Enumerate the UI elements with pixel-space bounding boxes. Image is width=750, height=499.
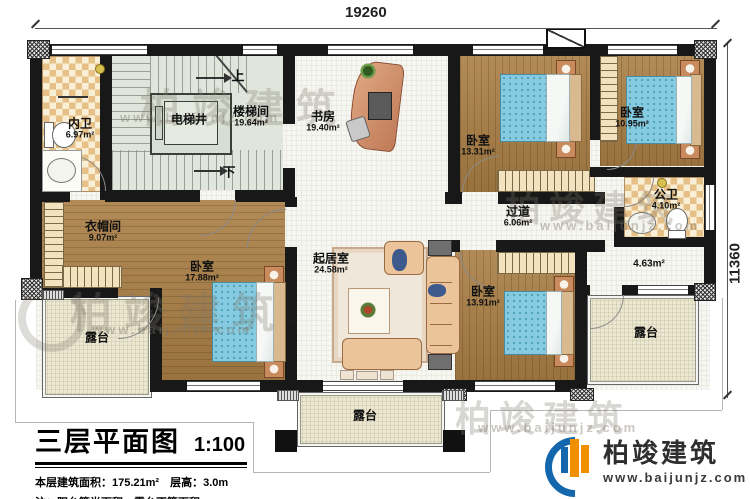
wall-gongwei-south <box>614 237 716 247</box>
bed-sheet <box>546 74 570 142</box>
person-figure <box>392 249 407 271</box>
room-label-guodao: 过道 6.06m² <box>504 205 533 228</box>
nightstand <box>264 360 284 378</box>
wall-bedroom-d-north-2 <box>496 240 605 252</box>
floor-plan-canvas: 19260 11360 柏竣建筑 www.baijunjz.com 柏竣建筑 w… <box>0 0 750 499</box>
room-area: 10.95m² <box>615 120 649 130</box>
title-row: 三层平面图 1:100 <box>35 420 295 459</box>
side-table <box>428 354 452 370</box>
bed-sheet <box>676 76 692 144</box>
table-decor <box>358 300 378 320</box>
title-underline-thin <box>35 467 247 468</box>
flue-box <box>546 28 586 49</box>
room-label-qijushi: 起居室 24.58m² <box>313 252 349 275</box>
room-area: 6.97m² <box>66 131 95 141</box>
wall-study-bedroom-a <box>448 44 460 204</box>
eave-line <box>15 300 16 423</box>
room-area: 19.64m² <box>233 119 269 129</box>
dimension-line-right <box>727 44 728 398</box>
sofa-cushions <box>430 262 452 346</box>
dimension-top-value: 19260 <box>345 4 387 21</box>
area-info-line: 本层建筑面积：175.21m² 层高：3.0m <box>35 474 295 490</box>
room-area: 13.91m² <box>466 299 500 309</box>
side-table <box>428 240 452 256</box>
corner-post-nw <box>27 40 50 59</box>
entry-mark <box>356 371 378 380</box>
room-area: 13.31m² <box>461 148 495 158</box>
bed-mattress-d <box>504 291 548 355</box>
stair-down-label: 下 <box>222 162 235 181</box>
room-area: 24.58m² <box>313 266 349 276</box>
wall-post-east <box>694 283 716 301</box>
tv-panel <box>286 272 297 326</box>
room-area: 17.88m² <box>185 274 219 284</box>
sliding-door-living-terrace <box>323 381 403 391</box>
bed-mattress-a <box>500 74 548 142</box>
room-name: 露台 <box>353 409 377 422</box>
sofa-bottom <box>342 338 422 370</box>
watermark-url: www.baijunjz.com <box>540 218 700 233</box>
plant <box>360 63 376 79</box>
room-label-yimaojian: 衣帽间 9.07m² <box>85 220 121 243</box>
plan-scale: 1:100 <box>194 434 245 457</box>
nightstand <box>556 140 576 158</box>
dimension-tick <box>723 390 732 399</box>
room-label-gongwei: 公卫 4.10m² <box>652 188 681 211</box>
brand-logo-bar-orange-2 <box>581 445 589 473</box>
room-area: 19.40m² <box>306 124 340 134</box>
wall-bedroom-a-b <box>590 44 600 140</box>
plan-title: 三层平面图 <box>35 420 180 459</box>
room-name: 露台 <box>85 331 109 344</box>
stair-up-label: 上 <box>231 66 244 85</box>
eave-line <box>722 298 723 410</box>
wall-bedroom-a-south-1 <box>445 192 462 204</box>
monitor <box>368 92 392 120</box>
bed-sheet <box>546 291 562 355</box>
window-east-gongwei <box>705 185 715 230</box>
bed-headboard <box>568 74 582 142</box>
room-label-loutijian: 楼梯间 19.64m² <box>233 105 269 128</box>
title-block: 三层平面图 1:100 本层建筑面积：175.21m² 层高：3.0m 注：阳台… <box>35 420 295 499</box>
room-label-woshi-c: 卧室 17.88m² <box>185 260 219 283</box>
brand-text: 柏竣建筑 www.baijunjz.com <box>603 433 747 485</box>
window-above-terrace-right <box>638 285 688 295</box>
window-north-2 <box>243 45 277 55</box>
room-area: 4.10m² <box>652 202 681 212</box>
note-line: 注：阳台算半面积，露台不算面积 <box>35 494 295 499</box>
sink-basin <box>47 158 76 183</box>
dimension-line-top <box>35 28 717 29</box>
room-label-lutai-bottom: 露台 <box>353 409 377 422</box>
wall-bedroom-d-east <box>575 247 587 390</box>
room-area: 9.07m² <box>85 234 121 244</box>
entry-mark <box>340 370 354 380</box>
brand-logo-block: 柏竣建筑 www.baijunjz.com <box>543 433 743 495</box>
window-north-1 <box>52 45 147 55</box>
entry-mark <box>380 370 394 380</box>
wall-south-stair-2 <box>235 190 290 202</box>
room-name: 电梯井 <box>171 113 207 126</box>
brand-logo-bar-blue <box>561 447 568 473</box>
brand-name: 柏竣建筑 <box>603 433 747 470</box>
wall-living-south-1 <box>297 380 323 392</box>
room-label-lutai-right: 露台 <box>634 326 658 339</box>
room-label-lutai-left: 露台 <box>85 331 109 344</box>
room-area: 4.63m² <box>633 259 665 270</box>
window-north-bedroom-a <box>473 45 543 55</box>
brand-website: www.baijunjz.com <box>603 470 747 485</box>
bed-headboard <box>560 291 574 355</box>
watermark-url: www.baijunjz.com <box>92 322 252 337</box>
corner-post-ne <box>694 40 717 59</box>
towel-bar <box>58 96 88 98</box>
wall-living-bedroom-c-1 <box>285 197 297 207</box>
room-label-woshi-b: 卧室 10.95m² <box>615 106 649 129</box>
title-underline-thick <box>35 462 247 465</box>
stair-down-arrow <box>194 170 220 172</box>
room-label-woshi-d: 卧室 13.91m² <box>466 285 500 308</box>
bedroom-d-wardrobe <box>497 252 579 274</box>
terrace-post-stripe <box>277 390 299 401</box>
room-label-woshi-a: 卧室 13.31m² <box>461 134 495 157</box>
cloakroom-wardrobe-west <box>44 202 64 288</box>
wall-west <box>30 44 42 300</box>
light-symbol <box>95 64 105 74</box>
room-label-diantijing: 电梯井 <box>171 113 207 126</box>
window-bedroom-c-south <box>187 381 260 391</box>
window-north-bedroom-b <box>608 45 677 55</box>
room-area: 6.06m² <box>504 219 533 229</box>
window-north-study <box>328 45 413 55</box>
room-label-balcony: 4.63m² <box>633 259 665 270</box>
person-figure <box>428 284 446 297</box>
room-label-neiwei: 内卫 6.97m² <box>66 117 95 140</box>
dimension-right-value: 11360 <box>727 234 744 294</box>
room-label-shufang: 书房 19.40m² <box>306 110 340 133</box>
wall-south-stair-1 <box>105 190 200 202</box>
brand-logo-bar-orange-1 <box>570 439 579 477</box>
room-name: 露台 <box>634 326 658 339</box>
